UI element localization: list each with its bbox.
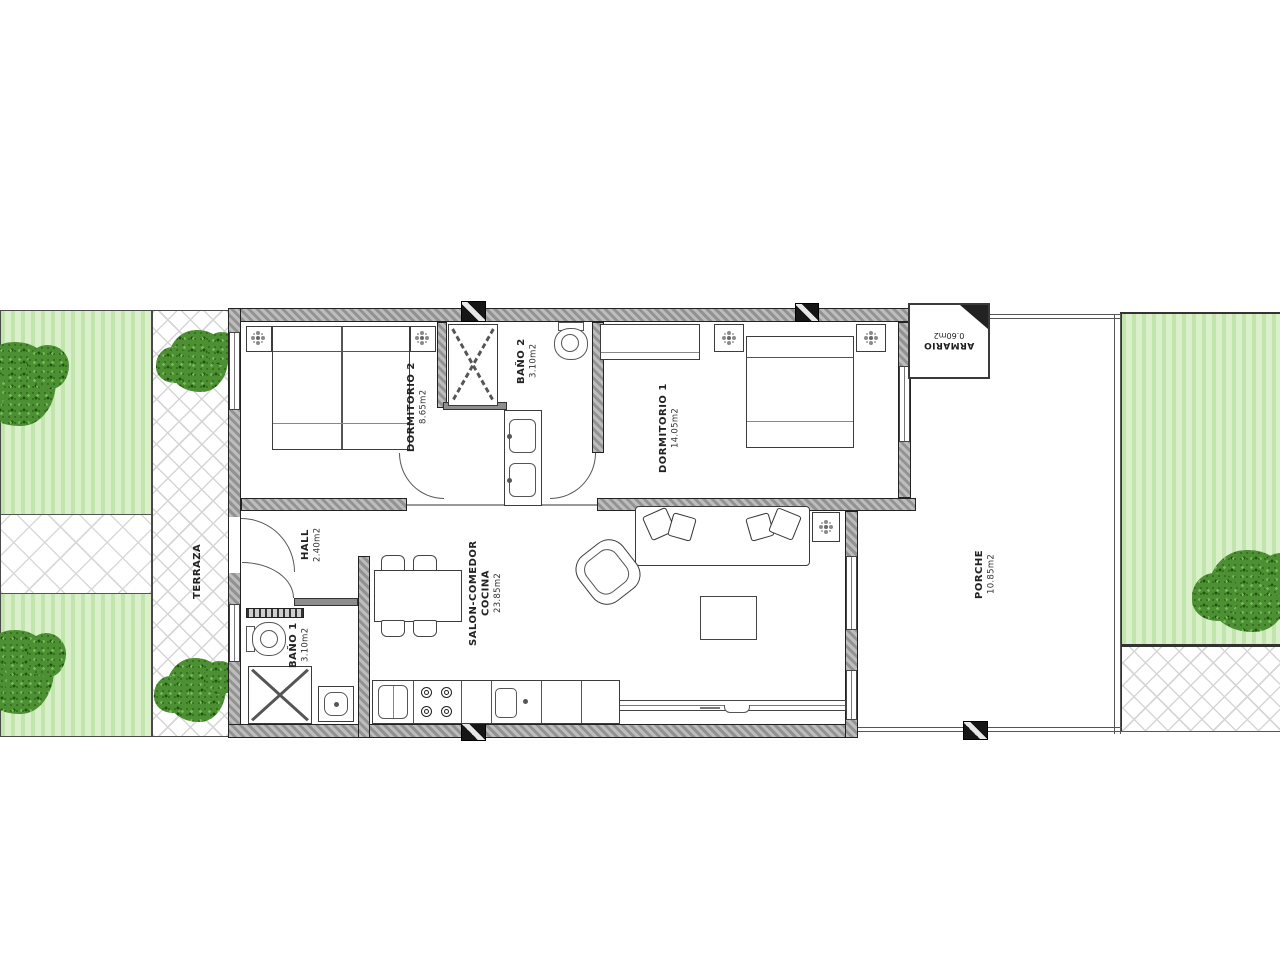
salon-label: SALON-COMEDOR COCINA 23.85m2 — [468, 530, 504, 656]
stove-burner — [441, 687, 452, 698]
doormat-line — [700, 707, 720, 709]
tree — [1208, 550, 1280, 632]
porche-label: PORCHE 10.85m2 — [974, 532, 997, 616]
dorm1-bed — [746, 336, 854, 448]
doormat — [724, 705, 750, 713]
bano2-toilet — [554, 328, 588, 360]
plot-line-south — [858, 727, 1122, 732]
plant-icon — [415, 331, 429, 345]
right-garden-hatch — [1120, 646, 1280, 732]
window-salon-south-glass — [596, 700, 846, 711]
plant-icon — [722, 331, 736, 345]
counter-divider — [413, 681, 414, 723]
left-garden-hatch-band — [1, 514, 151, 594]
pillar-marker — [963, 721, 988, 740]
coffee-table — [700, 596, 757, 640]
armchair-seat — [579, 544, 634, 599]
dorm1-nightstand-left — [714, 324, 744, 352]
faucet-dot — [507, 478, 512, 483]
wall-south — [228, 724, 858, 738]
wall-bano1-north — [294, 598, 358, 606]
faucet-dot — [523, 699, 528, 704]
sink-basin — [509, 419, 536, 453]
floor-plan: TERRAZA ARMARIO 0.60m2 — [0, 0, 1280, 960]
faucet-dot — [334, 702, 339, 707]
sofa — [635, 506, 810, 566]
bano2-label: BAÑO 2 3.10m2 — [516, 330, 539, 392]
terraza-label: TERRAZA — [192, 528, 205, 614]
tree — [166, 658, 226, 722]
dorm2-label: DORMITORIO 2 8.65m2 — [406, 346, 429, 468]
plant-icon — [819, 520, 833, 534]
stove-burner — [421, 687, 432, 698]
pillar-marker — [461, 722, 486, 741]
wall-dorm2-south — [241, 498, 407, 511]
bano2-shower — [448, 324, 498, 406]
bano1-label: BAÑO 1 3.10m2 — [288, 614, 311, 676]
shower-cross-icon — [449, 325, 497, 405]
counter-divider — [461, 681, 462, 723]
bano2-vanity — [504, 410, 542, 506]
dorm2-bed — [272, 326, 410, 450]
dining-chair — [381, 620, 405, 637]
bano2-toilet-bowl — [561, 334, 579, 352]
tree — [168, 330, 228, 392]
stove-burner — [441, 706, 452, 717]
dorm2-nightstand-left — [246, 326, 272, 352]
wall-dorm2-east — [437, 322, 447, 408]
faucet-dot — [507, 434, 512, 439]
sofa-pillow — [768, 507, 802, 541]
dorm1-bed-pillow-line — [747, 357, 853, 358]
armario-label: ARMARIO 0.60m2 — [910, 305, 988, 377]
dorm1-desk — [600, 324, 700, 360]
plant-icon — [864, 331, 878, 345]
corridor-line — [407, 504, 597, 506]
dorm1-nightstand-right — [856, 324, 886, 352]
stove-burner — [421, 706, 432, 717]
plant-icon — [251, 331, 265, 345]
dorm2-bed-blanket-line — [273, 423, 409, 424]
window-salon-east-2 — [846, 670, 857, 720]
bano1-toilet-bowl — [260, 630, 278, 648]
dining-chair — [413, 620, 437, 637]
kitchen-fridge — [378, 685, 408, 719]
window-dorm2-west — [229, 332, 240, 410]
door-arc-dorm1 — [550, 453, 596, 499]
pillar-marker — [461, 301, 486, 322]
kitchen-sink — [495, 688, 517, 718]
pillar-marker — [795, 303, 819, 322]
plot-line-east — [1114, 314, 1121, 734]
kitchen-counter — [372, 680, 620, 724]
window-bano1-west — [229, 604, 240, 662]
hall-label: HALL 2.40m2 — [300, 516, 323, 574]
bano1-sink — [318, 686, 354, 722]
bano1-toilet — [252, 622, 286, 656]
sofa-pillow — [667, 512, 697, 542]
counter-divider — [541, 681, 542, 723]
side-table — [812, 512, 840, 542]
dorm2-bed-divider — [341, 327, 343, 449]
dorm1-label: DORMITORIO 1 14.05m2 — [658, 372, 681, 484]
dining-table — [374, 570, 462, 622]
sink-basin — [509, 463, 536, 497]
dorm1-bed-blanket-line — [747, 421, 853, 422]
wall-hall-east — [358, 556, 370, 738]
counter-divider — [581, 681, 582, 723]
armario-box: ARMARIO 0.60m2 — [908, 303, 990, 379]
entrance-opening — [229, 517, 240, 573]
dorm1-desk-line — [601, 352, 699, 353]
window-salon-east-1 — [846, 556, 857, 630]
counter-divider — [491, 681, 492, 723]
sink-basin — [324, 692, 348, 716]
fridge-line — [393, 686, 394, 718]
dorm2-bed-pillow-line — [273, 351, 409, 352]
